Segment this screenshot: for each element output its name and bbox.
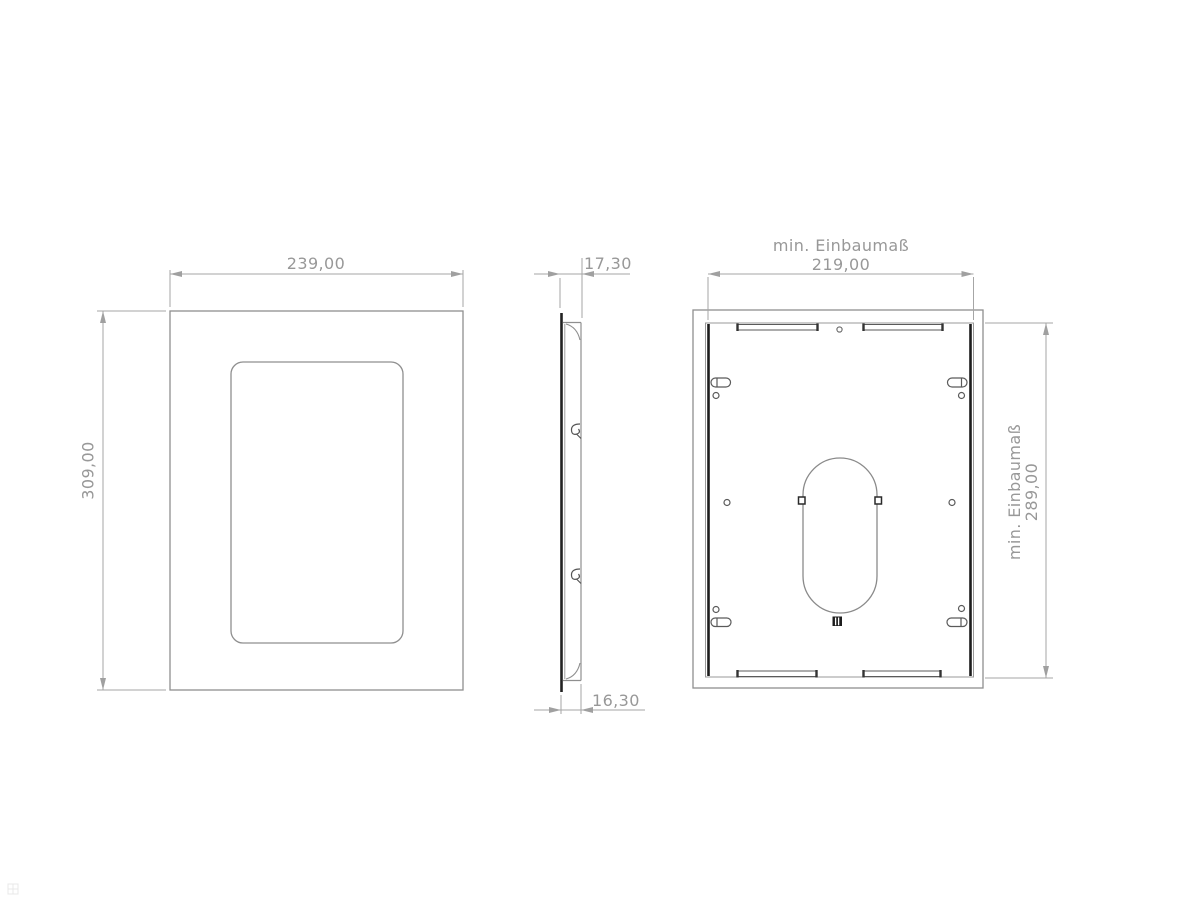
front-screen-window bbox=[231, 362, 403, 643]
screw-hole bbox=[713, 393, 719, 399]
watermark-grid-icon bbox=[8, 884, 18, 894]
vent-slot bbox=[863, 325, 943, 331]
front-view bbox=[170, 311, 463, 690]
back-install-height-dimension: 289,00 bbox=[1023, 412, 1040, 572]
side-dim-arrows bbox=[548, 271, 594, 713]
front-outer-frame bbox=[170, 311, 463, 690]
port-mark bbox=[833, 617, 843, 627]
keyhole-slot bbox=[711, 378, 731, 387]
front-dimension-lines bbox=[97, 270, 463, 690]
technical-drawing-page: 239,00 309,00 17,30 16,30 min. Einbaumaß… bbox=[0, 0, 1200, 900]
vent-slot bbox=[737, 325, 818, 331]
vent-slot bbox=[737, 671, 817, 677]
side-mount-hook-icon bbox=[571, 569, 581, 584]
cutout-latch-tab bbox=[875, 497, 882, 504]
side-mount-hook-icon bbox=[571, 424, 581, 439]
vent-slot bbox=[863, 671, 941, 677]
screw-hole bbox=[959, 606, 965, 612]
screw-hole bbox=[949, 500, 955, 506]
back-install-height-block: min. Einbaumaß 289,00 bbox=[1006, 412, 1040, 572]
back-install-width-dimension: 219,00 bbox=[741, 256, 941, 273]
back-dim-arrows bbox=[708, 271, 1049, 678]
screw-hole bbox=[959, 393, 965, 399]
side-dimension-lines bbox=[534, 258, 645, 714]
back-mount-holes bbox=[711, 378, 967, 627]
side-top-fillet bbox=[566, 324, 580, 340]
screw-hole bbox=[837, 327, 842, 332]
front-height-dimension: 309,00 bbox=[80, 421, 97, 521]
side-depth-bottom-dimension: 16,30 bbox=[592, 692, 652, 709]
back-dimension-lines bbox=[708, 274, 1053, 678]
screw-hole bbox=[724, 500, 730, 506]
oval-cable-cutout bbox=[803, 458, 877, 613]
back-bottom-slots bbox=[737, 670, 941, 678]
side-depth-top-dimension: 17,30 bbox=[584, 255, 644, 272]
back-top-slots bbox=[737, 324, 943, 333]
side-view bbox=[562, 313, 582, 692]
screw-hole bbox=[713, 607, 719, 613]
keyhole-slot bbox=[711, 618, 731, 627]
front-width-dimension: 239,00 bbox=[266, 255, 366, 272]
keyhole-slot bbox=[947, 618, 967, 627]
keyhole-slot bbox=[948, 378, 968, 387]
back-view bbox=[693, 310, 983, 688]
cutout-latch-tab bbox=[799, 497, 806, 504]
back-outer-frame bbox=[693, 310, 983, 688]
front-dim-arrows bbox=[100, 271, 463, 690]
back-install-width-label: min. Einbaumaß bbox=[741, 237, 941, 254]
side-bottom-fillet bbox=[566, 663, 580, 679]
back-install-height-label: min. Einbaumaß bbox=[1006, 412, 1023, 572]
